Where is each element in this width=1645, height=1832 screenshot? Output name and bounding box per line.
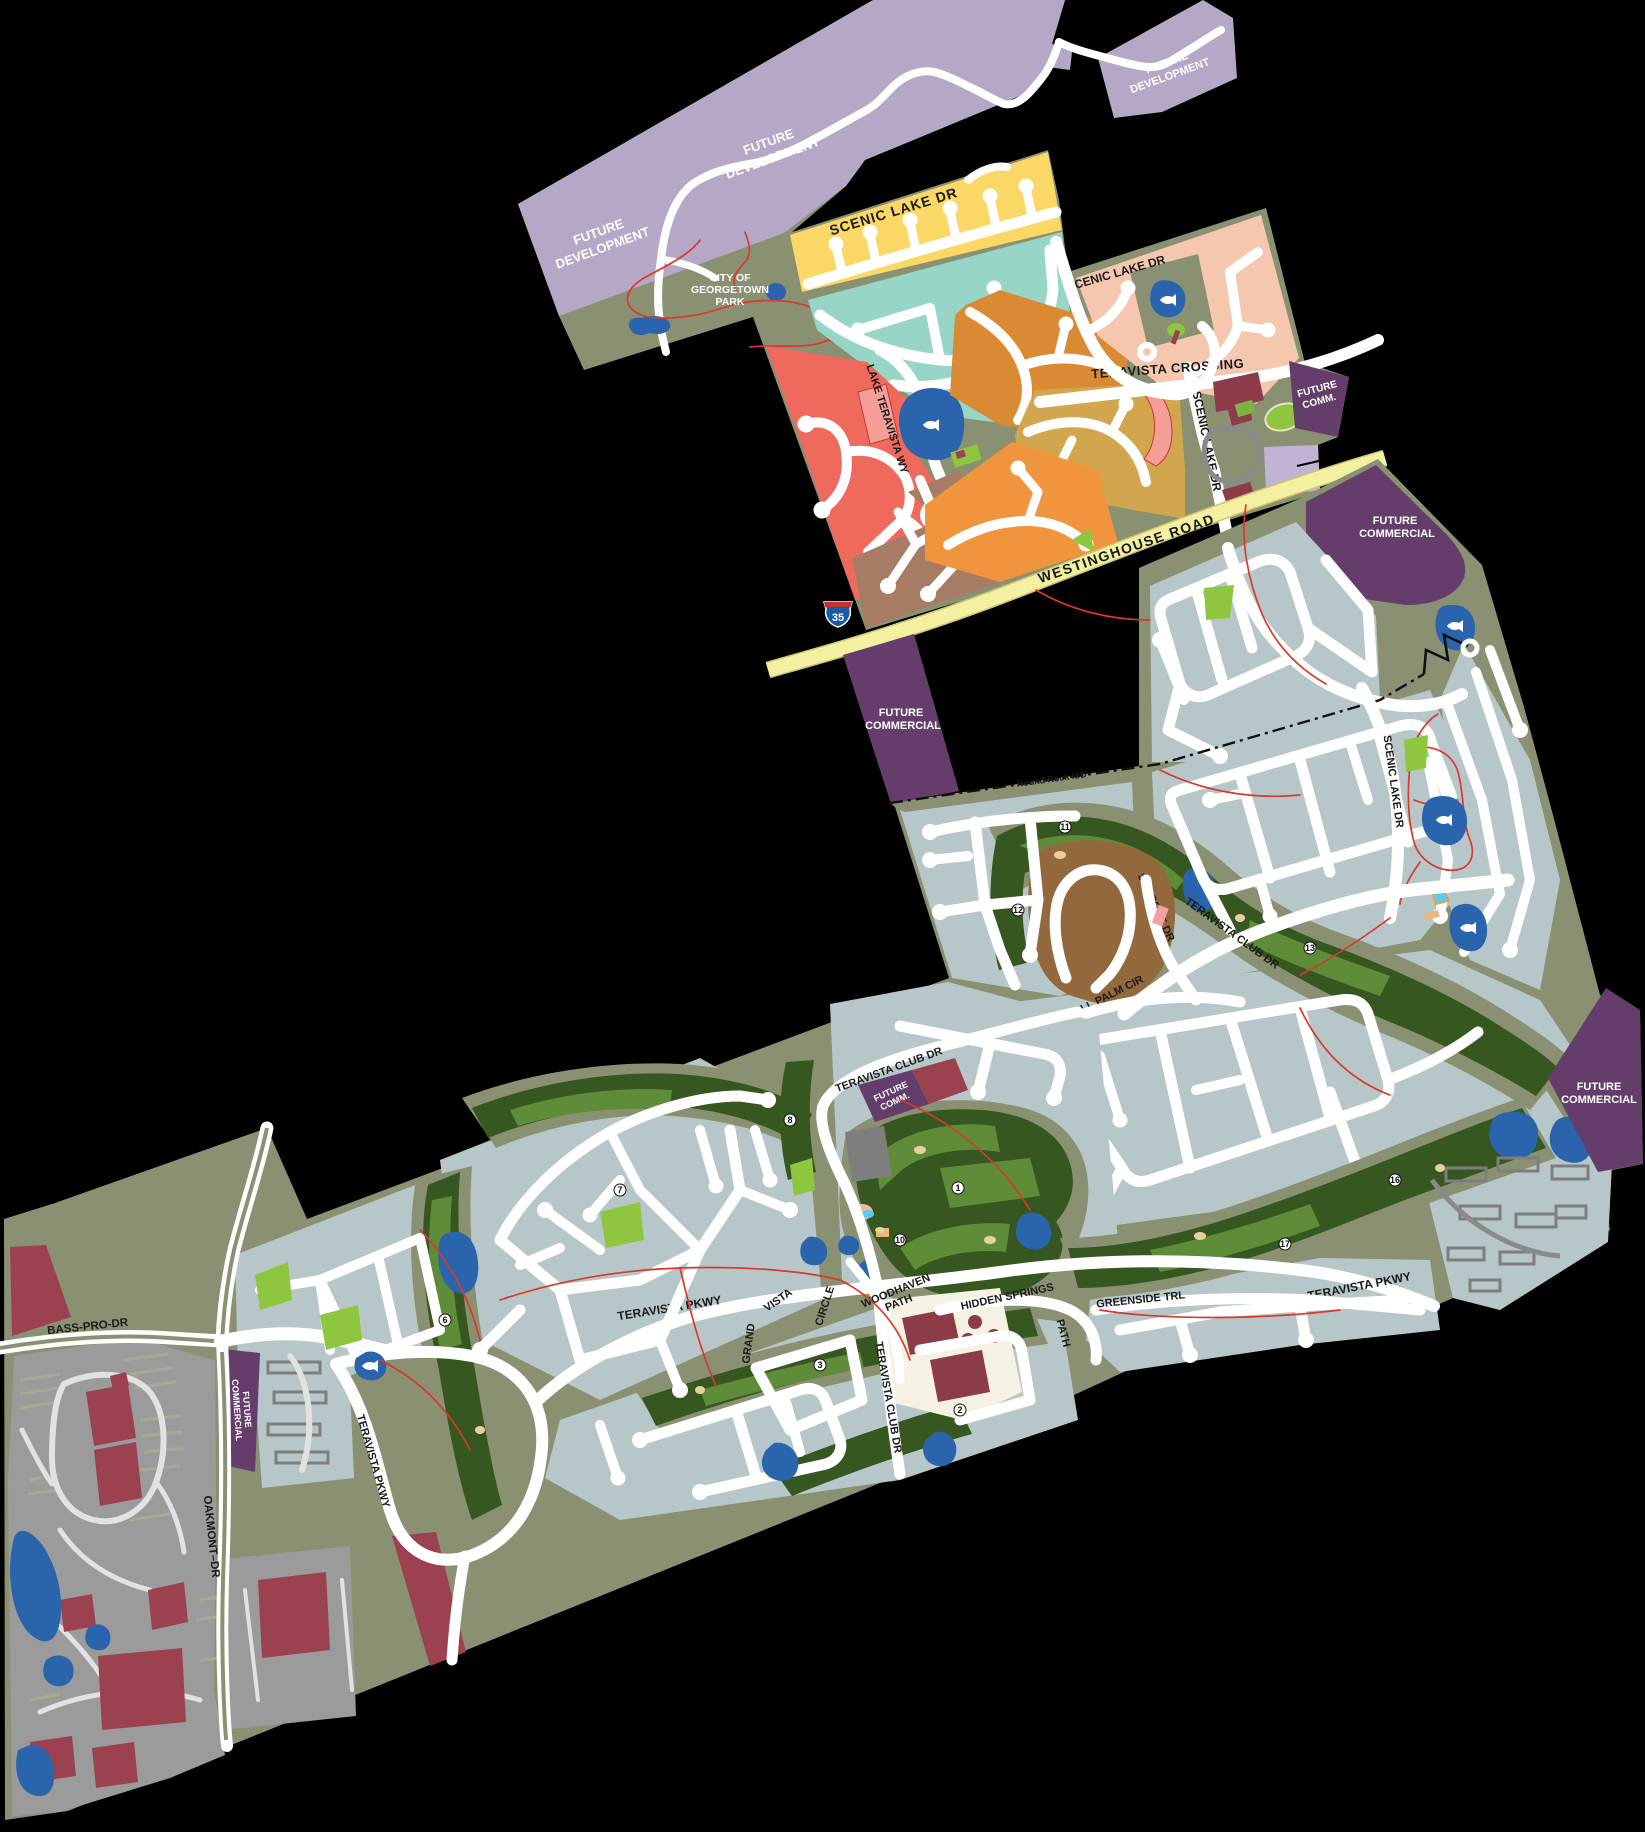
- svg-text:3: 3: [817, 1360, 822, 1370]
- svg-text:16: 16: [1390, 1175, 1400, 1185]
- svg-text:GEORGETOWN: GEORGETOWN: [691, 284, 769, 296]
- svg-text:FUTURE: FUTURE: [1373, 515, 1418, 527]
- svg-text:COMMERCIAL: COMMERCIAL: [1561, 1094, 1637, 1106]
- svg-text:11: 11: [1060, 822, 1070, 832]
- svg-text:10: 10: [895, 1235, 905, 1245]
- svg-text:12: 12: [1013, 905, 1023, 915]
- svg-text:COMMERCIAL: COMMERCIAL: [865, 720, 941, 732]
- svg-text:COMMERCIAL: COMMERCIAL: [1359, 528, 1435, 540]
- svg-text:8: 8: [787, 1115, 792, 1125]
- svg-text:FUTURE: FUTURE: [1577, 1081, 1622, 1093]
- svg-text:6: 6: [442, 1315, 447, 1325]
- svg-text:2: 2: [957, 1405, 962, 1415]
- svg-text:7: 7: [617, 1185, 622, 1195]
- svg-text:PARK: PARK: [716, 296, 745, 308]
- svg-text:13: 13: [1305, 943, 1315, 953]
- svg-text:FUTURE: FUTURE: [879, 707, 924, 719]
- svg-text:CITY OF: CITY OF: [709, 272, 751, 284]
- svg-text:1: 1: [955, 1183, 960, 1193]
- svg-text:17: 17: [1280, 1239, 1290, 1249]
- svg-text:35: 35: [832, 612, 844, 624]
